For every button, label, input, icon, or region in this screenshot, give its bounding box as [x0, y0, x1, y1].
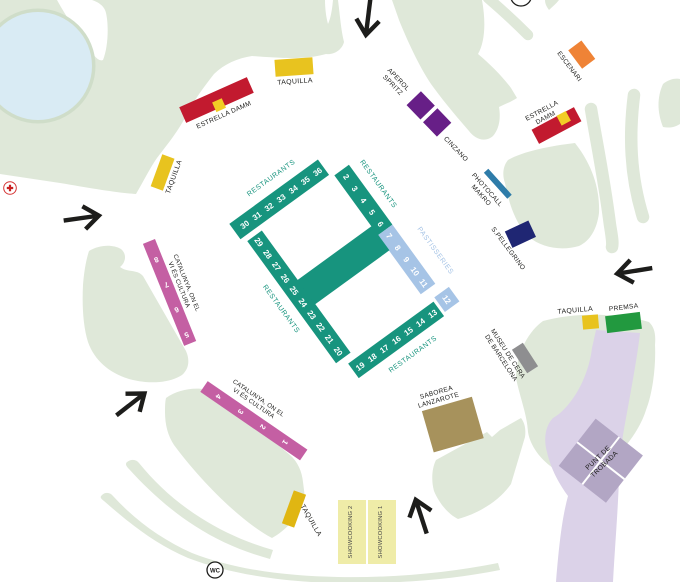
- svg-text:WC: WC: [210, 569, 221, 575]
- svg-text:SHOWCOOKING 2: SHOWCOOKING 2: [348, 506, 354, 559]
- svg-text:SHOWCOOKING 1: SHOWCOOKING 1: [378, 506, 384, 559]
